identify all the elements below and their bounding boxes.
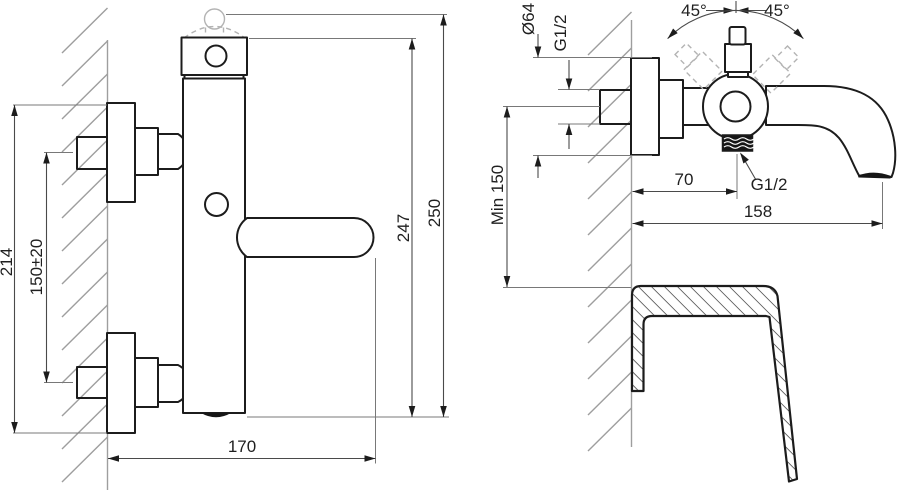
dim-label-body-height: 247: [394, 214, 413, 242]
bottom-outlet: [201, 413, 231, 417]
dim-label-outlet-offset: 70: [675, 170, 694, 189]
dim-label-spout-reach: 158: [744, 202, 772, 221]
cap-screw: [206, 46, 227, 67]
dim-label-total-height: 250: [425, 199, 444, 227]
upper-nut: [135, 128, 158, 175]
upper-inlet-nipple: [77, 137, 107, 169]
side-inlet-nipple: [600, 90, 631, 124]
handle-lever: [237, 218, 374, 257]
dim-label-outlet-thread: G1/2: [751, 175, 788, 194]
diverter-button: [205, 193, 228, 216]
lower-escutcheon: [107, 333, 135, 433]
side-view-dimensions: Ø64 G1/2 Min 150 45° 4: [488, 1, 883, 288]
lower-inlet-nipple: [77, 367, 107, 398]
handle-upright: [725, 27, 751, 77]
bathtub-rim-section: [632, 286, 797, 482]
valve-cartridge-cap: [721, 92, 751, 122]
dim-label-inlet-thread: G1/2: [551, 15, 570, 52]
dim-label-inlet-spacing: 150±20: [27, 239, 46, 296]
faucet-dimensional-drawing: 214 150±20 250 247 170: [0, 0, 900, 492]
upper-escutcheon: [107, 103, 135, 202]
technical-drawing-page: 214 150±20 250 247 170: [0, 0, 900, 492]
dim-label-angle-left: 45°: [681, 1, 707, 20]
lower-nut: [135, 358, 158, 407]
dim-label-escutcheon-dia: Ø64: [519, 3, 538, 35]
dim-label-angle-right: 45°: [764, 1, 790, 20]
dim-label-min-height: Min 150: [488, 165, 507, 225]
side-escutcheon: [631, 58, 659, 155]
shower-outlet-thread: [723, 135, 755, 151]
side-flange: [659, 80, 683, 138]
wall-hatch-side: [588, 12, 632, 451]
dim-label-mount-span: 214: [0, 248, 16, 276]
dim-label-width: 170: [228, 437, 256, 456]
front-view: 214 150±20 250 247 170: [0, 8, 449, 490]
side-view: Ø64 G1/2 Min 150 45° 4: [488, 1, 895, 482]
spout: [766, 86, 895, 177]
wall-hatch-front: [62, 8, 108, 490]
faucet-body-front: [182, 38, 374, 418]
body-column: [183, 79, 245, 414]
